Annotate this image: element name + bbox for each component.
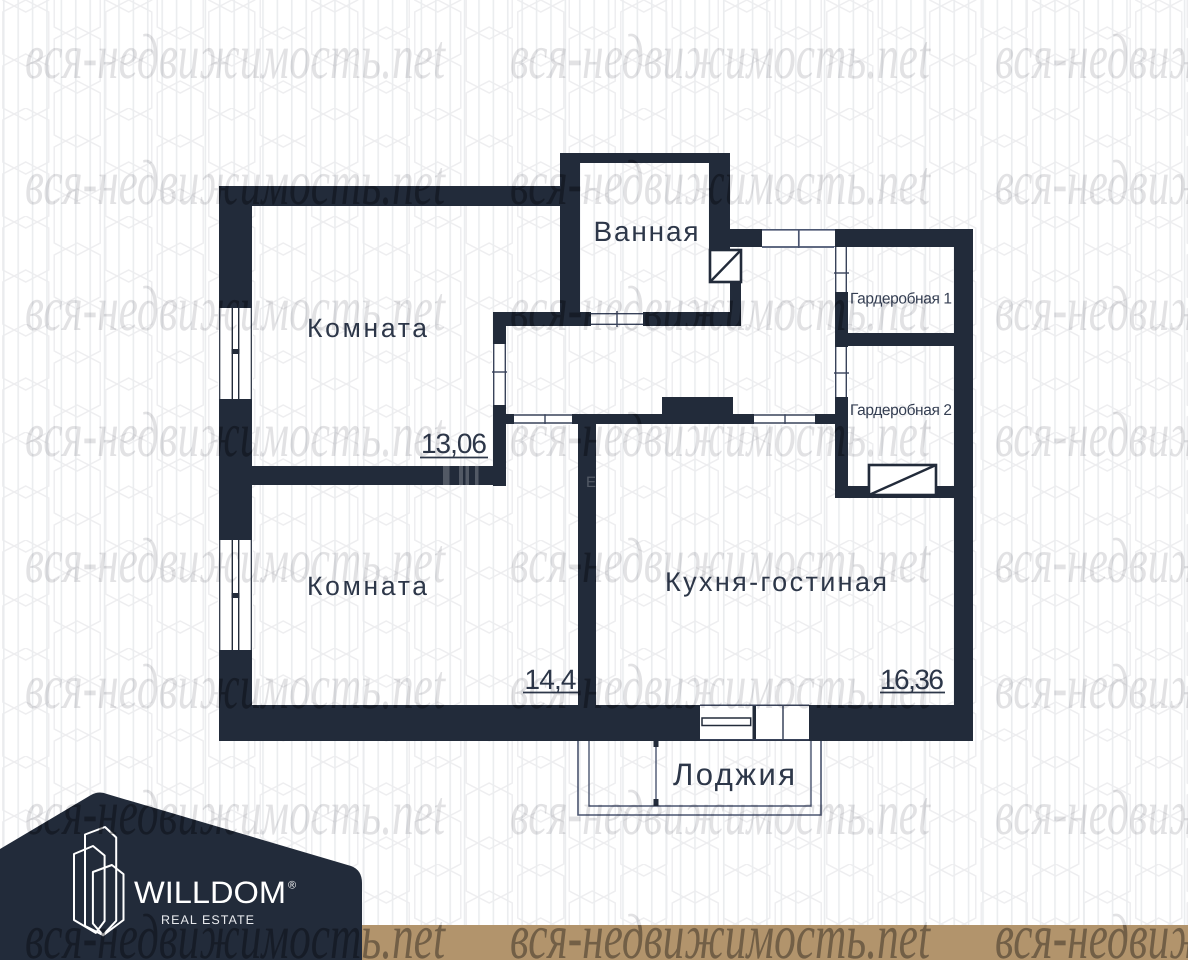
svg-text:вся-недвижимость.net: вся-недвижимость.net — [995, 273, 1188, 344]
svg-text:®: ® — [288, 880, 296, 892]
svg-text:вся-недвижимость.net: вся-недвижимость.net — [510, 777, 932, 848]
svg-text:вся-недвижимость.net: вся-недвижимость.net — [995, 399, 1188, 470]
svg-text:вся-недвижимость.net: вся-недвижимость.net — [995, 777, 1188, 848]
svg-text:вся-недвижимость.net: вся-недвижимость.net — [995, 525, 1188, 596]
svg-text:вся-недвижимость.net: вся-недвижимость.net — [995, 147, 1188, 218]
svg-text:Е: Е — [586, 474, 596, 491]
svg-text:вся-недвижимость.net: вся-недвижимость.net — [510, 525, 932, 596]
svg-text:Ванная: Ванная — [594, 216, 699, 247]
svg-text:вся-недвижимость.net: вся-недвижимость.net — [995, 21, 1188, 92]
svg-text:вся-недвижимость.net: вся-недвижимость.net — [510, 21, 932, 92]
svg-text:вся-недвижимость.net: вся-недвижимость.net — [25, 21, 447, 92]
svg-text:вся-недвижимость.net: вся-недвижимость.net — [995, 651, 1188, 722]
